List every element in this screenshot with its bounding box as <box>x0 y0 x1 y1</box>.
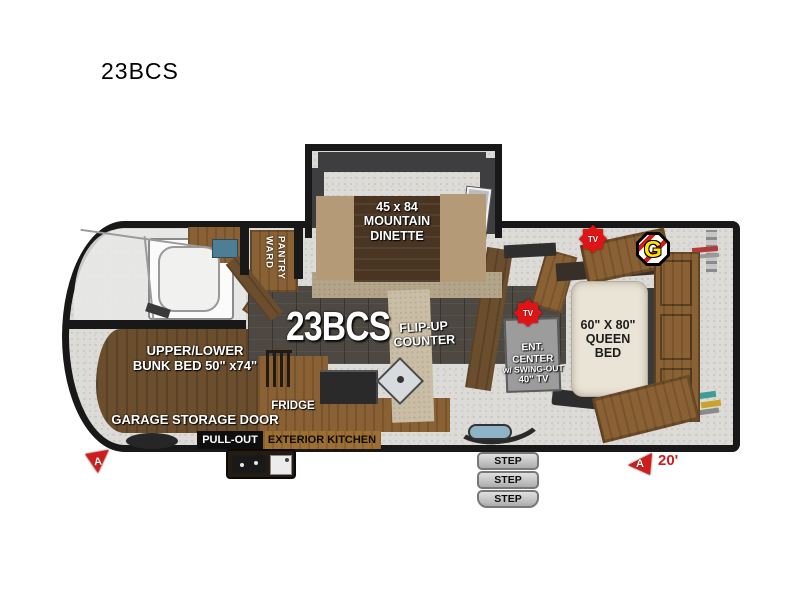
floorplan-page: 23BCS 45 x 84 MOUNTAIN DINETTE WARD PANT… <box>0 0 800 600</box>
tv-icon: TV <box>580 226 606 252</box>
bunk-bed-label: UPPER/LOWER BUNK BED 50" x74" <box>105 344 285 374</box>
flip-up-counter <box>388 289 435 422</box>
page-title: 23BCS <box>101 58 179 85</box>
ent-center-label: ENT. CENTER w/ SWING-OUT 40" TV <box>497 341 568 387</box>
a-logo-letter: A <box>85 450 111 474</box>
exterior-kitchen-label: EXTERIOR KITCHEN <box>263 431 381 449</box>
flip-up-counter-label: FLIP-UP COUNTER <box>379 318 468 351</box>
brand-a-badge-left: A <box>85 450 111 474</box>
overhead-slab <box>504 243 557 259</box>
stove-icon <box>320 370 378 404</box>
wardrobe-door <box>660 314 692 360</box>
dinette-label: 45 x 84 MOUNTAIN DINETTE <box>337 200 457 243</box>
fridge-label: FRIDGE <box>262 400 324 413</box>
length-label: 20' <box>658 452 678 469</box>
entry-steps: STEP STEP STEP <box>477 452 539 509</box>
interior-wall <box>240 227 249 275</box>
a-logo-letter: A <box>628 453 652 475</box>
model-label: 23BCS <box>286 303 390 350</box>
pull-out-kitchen-unit <box>226 449 296 479</box>
queen-bed-label: 60" X 80" QUEEN BED <box>563 318 653 360</box>
tv-badge-bedroom: TV <box>580 226 606 252</box>
ward-pantry-label: WARD PANTRY <box>254 236 296 290</box>
faucet-icon <box>285 458 289 462</box>
brand-a-badge-right: A <box>628 453 652 475</box>
tv-icon: TV <box>515 300 541 326</box>
interior-wall <box>64 320 246 329</box>
step-2: STEP <box>477 471 539 489</box>
burner-icon <box>240 463 244 467</box>
step-3: STEP <box>477 490 539 508</box>
dinette-backrest <box>318 152 486 172</box>
burner-panel <box>232 455 266 473</box>
g-logo-letter: G <box>644 238 662 261</box>
wardrobe-door <box>660 260 692 306</box>
tub <box>158 246 220 312</box>
pull-out-label: PULL-OUT <box>197 431 263 449</box>
bathroom-sink-icon <box>212 239 238 258</box>
tv-badge-living: TV <box>515 300 541 326</box>
burner-icon <box>254 461 258 465</box>
step-1: STEP <box>477 452 539 470</box>
entry-step-well <box>468 424 512 440</box>
dinette-size: 45 x 84 <box>376 200 418 214</box>
faucet-icon <box>397 376 404 383</box>
exterior-sink-icon <box>270 455 292 475</box>
wheel-icon <box>126 433 178 449</box>
garage-door-label: GARAGE STORAGE DOOR <box>100 413 290 428</box>
